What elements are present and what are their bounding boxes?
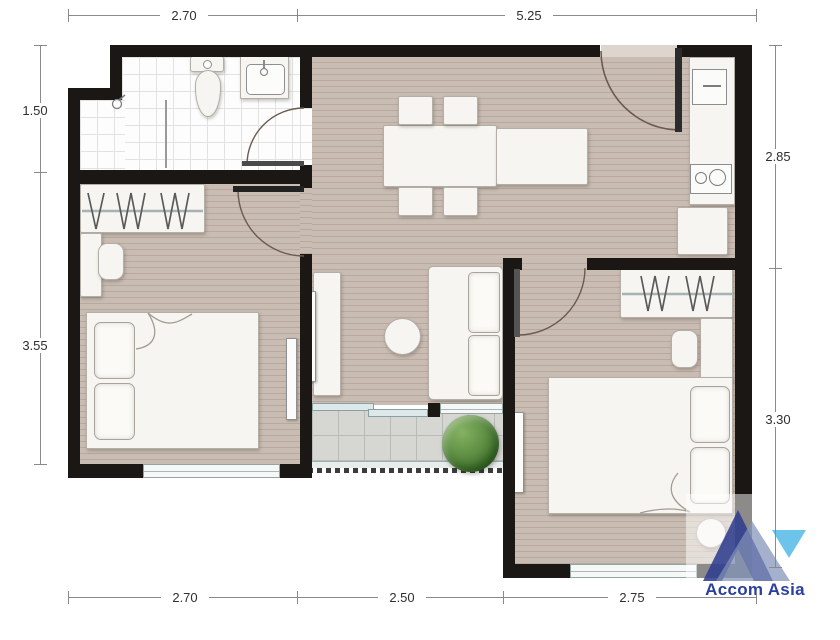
tv-console (313, 272, 341, 396)
wall-bedroom1-living (300, 254, 312, 478)
window (143, 464, 280, 478)
dimension-tick (34, 45, 47, 46)
entrance-threshold (601, 45, 677, 57)
bathroom-door-gap (300, 108, 312, 165)
shower-divider (165, 100, 167, 168)
dimension-tick (769, 268, 782, 269)
dimension-tick (297, 591, 298, 604)
dimension-tick (34, 464, 47, 465)
sink-basin (246, 64, 285, 95)
wall-bathroom-right (300, 45, 312, 108)
dimension-label: 5.25 (505, 8, 553, 23)
toilet-button-icon (203, 60, 212, 69)
dining-chair (398, 96, 433, 125)
window (570, 564, 697, 578)
dimension-tick (297, 9, 298, 22)
stove-burner-icon (695, 172, 707, 184)
dimension-label: 3.55 (13, 338, 57, 353)
kitchen-island (496, 128, 588, 185)
dimension-label: 2.85 (755, 149, 801, 164)
wall-bedroom2-top (503, 258, 522, 270)
desk-chair (98, 243, 124, 280)
kitchen-cabinet (677, 207, 728, 255)
desk (700, 318, 733, 382)
dimension-tick (34, 172, 47, 173)
wall-balcony-stub (428, 403, 440, 417)
dimension-tick (756, 9, 757, 22)
balcony-window (440, 403, 503, 414)
dimension-label: 2.75 (608, 590, 656, 605)
bedroom1-door-gap (300, 188, 312, 254)
wall-bedroom2-left (503, 258, 515, 578)
pillow (690, 386, 730, 443)
floor-plan: Accom Asia 2.70 5.25 2.70 2.50 2.75 1.50… (0, 0, 840, 640)
sofa-cushion (468, 272, 500, 333)
wall-junction (300, 165, 312, 188)
fridge-icon (692, 69, 727, 105)
dimension-label: 1.50 (13, 103, 57, 118)
wall-top (110, 45, 600, 57)
dining-chair (443, 187, 478, 216)
dimension-label: 2.70 (161, 590, 209, 605)
dimension-tick (769, 45, 782, 46)
tv (286, 338, 297, 420)
stove-burner-icon (709, 169, 726, 186)
logo-backdrop (686, 494, 786, 578)
wardrobe (620, 268, 733, 318)
dimension-line-right (775, 45, 776, 568)
wardrobe (80, 184, 205, 233)
wall-bedroom2-top (587, 258, 752, 270)
shower-floor (80, 100, 125, 170)
bedroom2-door-gap (522, 258, 587, 270)
dimension-tick (68, 9, 69, 22)
wall-left (68, 98, 80, 478)
dimension-tick (769, 567, 782, 568)
dimension-tick (503, 591, 504, 604)
dining-table (383, 125, 497, 187)
dimension-tick (756, 591, 757, 604)
dimension-label: 2.70 (160, 8, 208, 23)
pillow (94, 383, 135, 440)
dimension-tick (68, 591, 69, 604)
dimension-label: 3.30 (755, 412, 801, 427)
sliding-door (368, 409, 428, 417)
desk-chair (671, 330, 698, 368)
plant-icon (442, 415, 499, 472)
dining-chair (443, 96, 478, 125)
dimension-label: 2.50 (378, 590, 426, 605)
pillow (94, 322, 135, 379)
coffee-table (384, 318, 421, 355)
dining-chair (398, 187, 433, 216)
wall-bathroom-bottom (68, 170, 312, 184)
sliding-door (312, 403, 374, 411)
fridge-handle (703, 85, 721, 87)
sofa-cushion (468, 335, 500, 396)
